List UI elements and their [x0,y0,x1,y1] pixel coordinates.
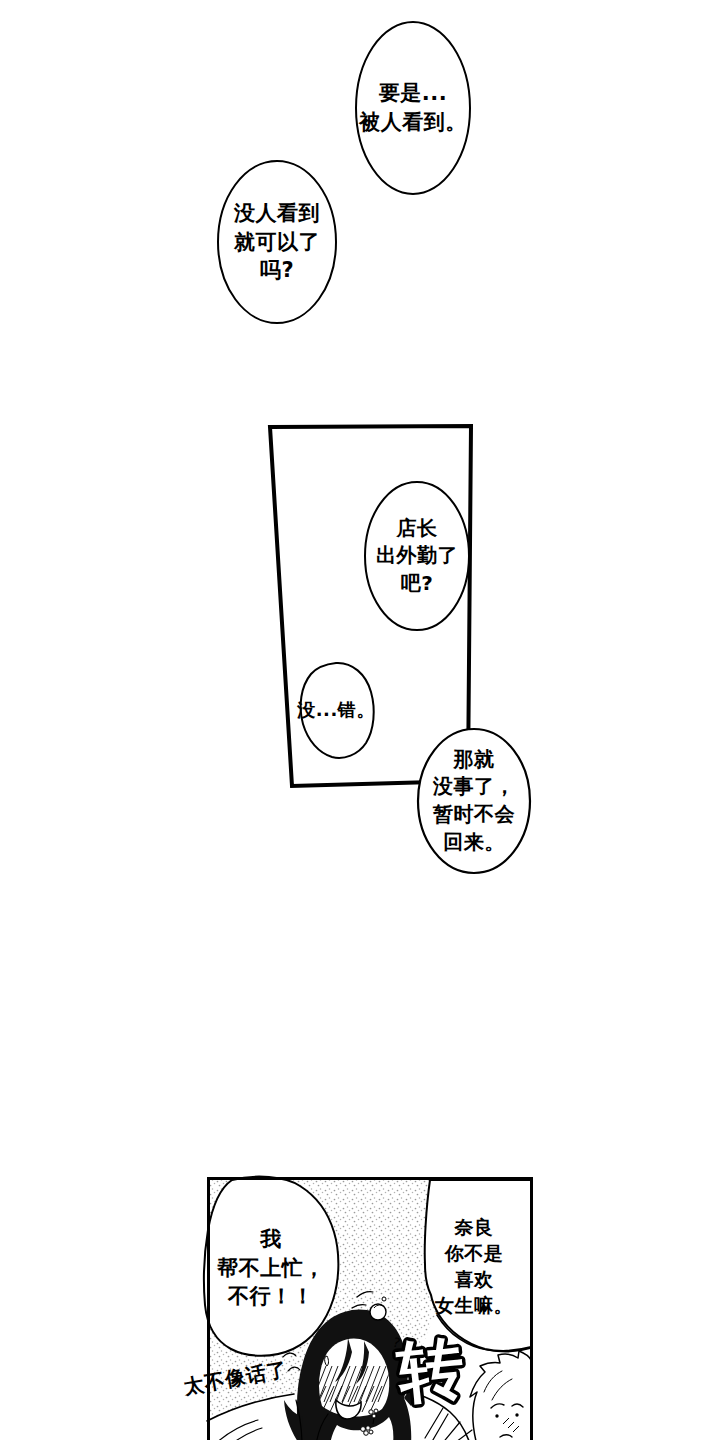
manga-page: ? ? 转 [0,0,720,1440]
bubble-line: 吗? [260,256,294,285]
bubble-line: 要是... [379,79,447,108]
bubble-line: 你不是 [445,1240,504,1266]
bubble-line: 出外勤了 [376,542,458,570]
bubble-line: 吧? [401,570,434,598]
bubble-line: 就可以了 [234,228,320,257]
speech-bubble-manager-out-text: 店长 出外勤了 吧? [365,484,469,628]
speech-bubble-thats-right-text: 没...错。 [297,668,375,752]
bubble-line: 女生嘛。 [435,1292,513,1318]
speech-bubble-if-seen-text: 要是... 被人看到。 [357,28,469,188]
bubble-line: 暂时不会 [433,801,515,829]
bubble-line: 我 [260,1225,282,1254]
speech-bubble-wont-return-text: 那就 没事了， 暂时不会 回来。 [418,732,530,870]
bubble-line: 奈良 [455,1214,494,1240]
bubble-line: 没...错。 [297,698,375,723]
bubble-line: 没事了， [433,773,515,801]
bubble-line: 帮不上忙， [217,1254,325,1283]
bubble-line: 喜欢 [455,1266,494,1292]
bubble-line: 没人看到 [234,199,320,228]
speech-bubble-no-one-saw-text: 没人看到 就可以了 吗? [217,162,337,322]
bubble-line: 不行！！ [228,1282,314,1311]
blond-eye [495,1414,498,1417]
bubble-line: 那就 [454,746,495,774]
bubble-line: 店长 [397,515,438,543]
speech-bubble-cant-help-text: 我 帮不上忙， 不行！！ [206,1194,336,1342]
bubble-line: 回来。 [443,829,505,857]
blond-eye [515,1413,518,1416]
speech-bubble-nara-text: 奈良 你不是 喜欢 女生嘛。 [420,1188,528,1344]
bubble-line: 被人看到。 [359,108,467,137]
